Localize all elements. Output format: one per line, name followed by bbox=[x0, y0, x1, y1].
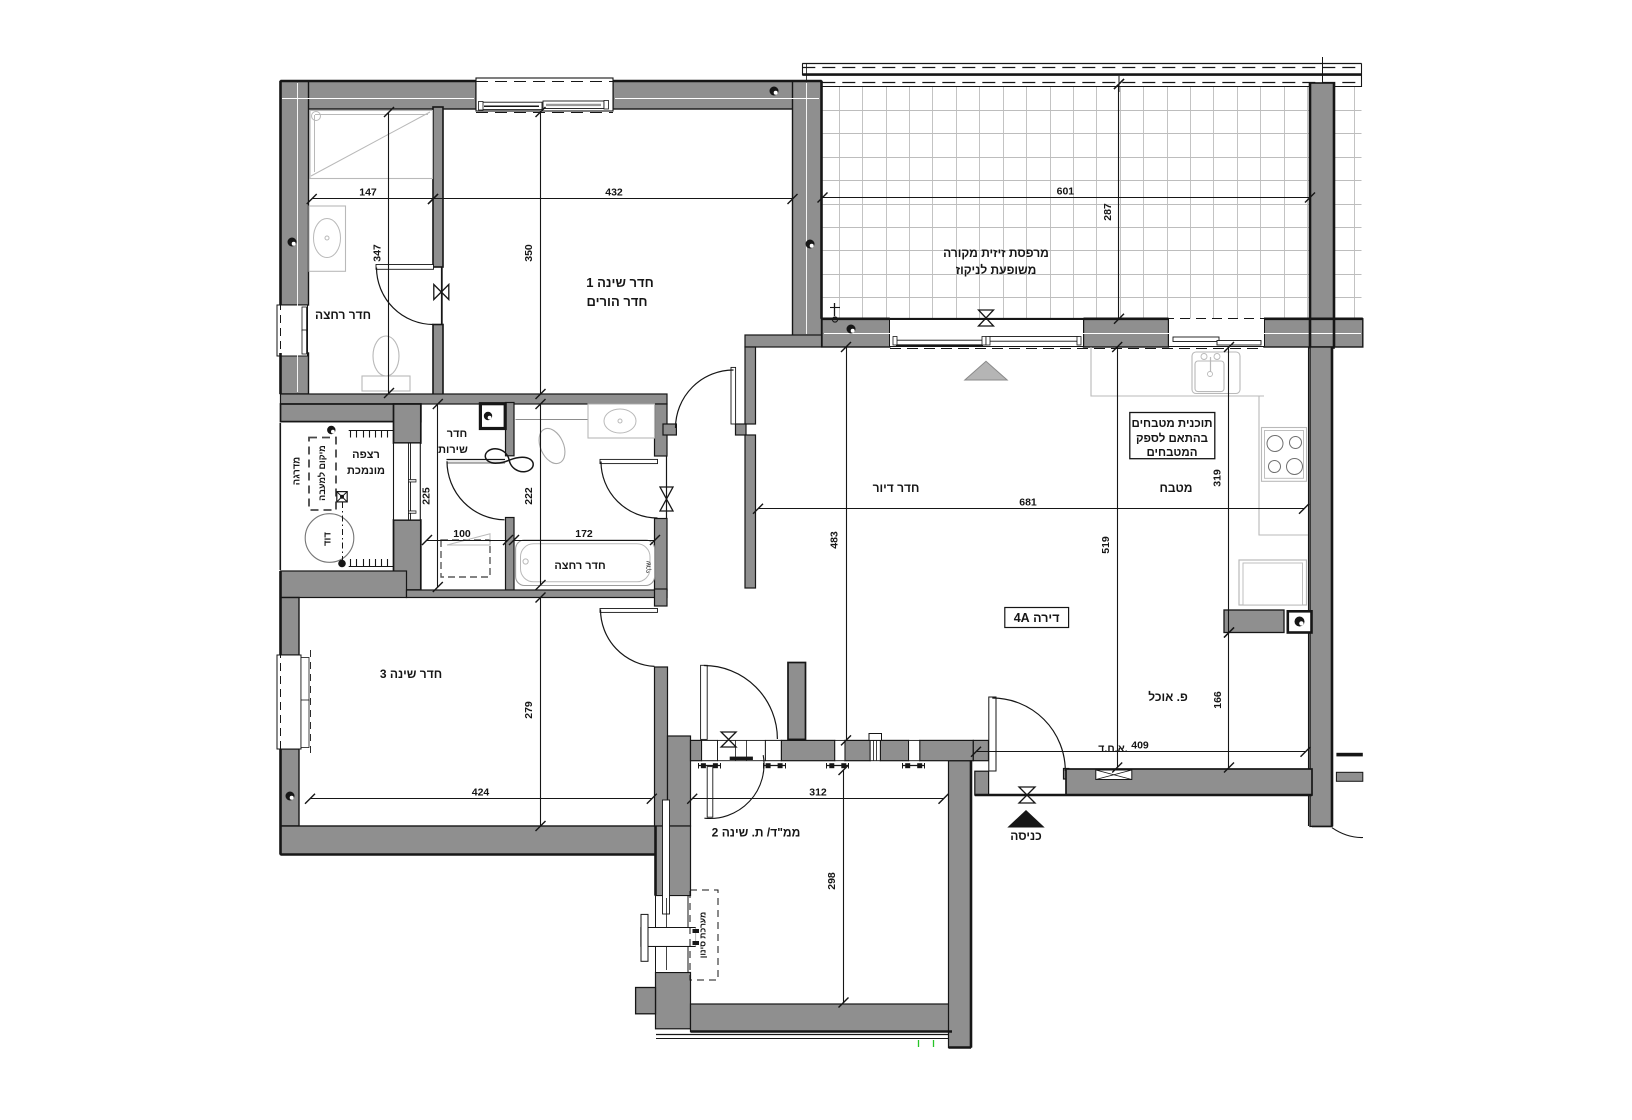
svg-text:משופעת לניקוז: משופעת לניקוז bbox=[956, 263, 1037, 277]
svg-text:מדרגה: מדרגה bbox=[292, 457, 303, 486]
svg-text:חדר שינה 1: חדר שינה 1 bbox=[586, 275, 653, 290]
svg-text:רצפה: רצפה bbox=[352, 449, 380, 461]
svg-text:483: 483 bbox=[829, 531, 841, 549]
svg-text:חדר הורים: חדר הורים bbox=[587, 294, 648, 309]
svg-text:147: 147 bbox=[359, 187, 377, 199]
svg-text:מיקום למעבה: מיקום למעבה bbox=[317, 445, 327, 501]
svg-text:222: 222 bbox=[523, 487, 535, 505]
svg-text:347: 347 bbox=[372, 244, 384, 262]
svg-text:שירות: שירות bbox=[438, 444, 468, 456]
svg-text:172: 172 bbox=[575, 528, 593, 540]
svg-text:דירה 4A: דירה 4A bbox=[1014, 611, 1060, 625]
svg-text:601: 601 bbox=[1057, 186, 1075, 198]
svg-text:תוכנית מטבחים: תוכנית מטבחים bbox=[1132, 418, 1213, 430]
svg-text:מונמכת: מונמכת bbox=[347, 465, 385, 477]
svg-text:פ. אוכל: פ. אוכל bbox=[1148, 690, 1188, 704]
svg-text:חדר רחצה: חדר רחצה bbox=[554, 560, 605, 572]
svg-text:מטבח: מטבח bbox=[1159, 481, 1192, 495]
svg-text:חדר: חדר bbox=[447, 428, 467, 440]
svg-text:409: 409 bbox=[1131, 739, 1149, 751]
svg-text:312: 312 bbox=[809, 786, 827, 798]
svg-text:חדר שינה 3: חדר שינה 3 bbox=[380, 667, 442, 681]
svg-text:350: 350 bbox=[523, 244, 535, 262]
svg-text:279: 279 bbox=[523, 701, 535, 719]
svg-text:חדר דיור: חדר דיור bbox=[873, 481, 920, 495]
svg-text:חדר רחצה: חדר רחצה bbox=[315, 308, 371, 322]
svg-text:א.ח.ד.: א.ח.ד. bbox=[1098, 743, 1127, 755]
svg-text:שרף: שרף bbox=[646, 561, 653, 573]
svg-text:298: 298 bbox=[826, 872, 838, 890]
svg-text:225: 225 bbox=[421, 487, 433, 505]
svg-text:166: 166 bbox=[1212, 691, 1224, 709]
svg-text:ממ"ד/ ת. שינה 2: ממ"ד/ ת. שינה 2 bbox=[712, 826, 801, 840]
svg-text:681: 681 bbox=[1019, 496, 1037, 508]
svg-text:כניסה: כניסה bbox=[1010, 829, 1042, 843]
svg-text:המטבחים: המטבחים bbox=[1147, 447, 1198, 459]
svg-text:מערכת סינון: מערכת סינון bbox=[698, 912, 708, 958]
svg-text:287: 287 bbox=[1102, 203, 1114, 221]
svg-text:100: 100 bbox=[453, 528, 471, 540]
svg-text:424: 424 bbox=[472, 786, 490, 798]
svg-text:519: 519 bbox=[1100, 536, 1112, 554]
svg-text:מרפסת זיזית מקורה: מרפסת זיזית מקורה bbox=[943, 246, 1049, 260]
svg-text:בהתאם לספק: בהתאם לספק bbox=[1136, 432, 1208, 445]
svg-text:דוד: דוד bbox=[323, 532, 334, 546]
svg-text:319: 319 bbox=[1212, 469, 1224, 487]
svg-text:432: 432 bbox=[605, 187, 623, 199]
